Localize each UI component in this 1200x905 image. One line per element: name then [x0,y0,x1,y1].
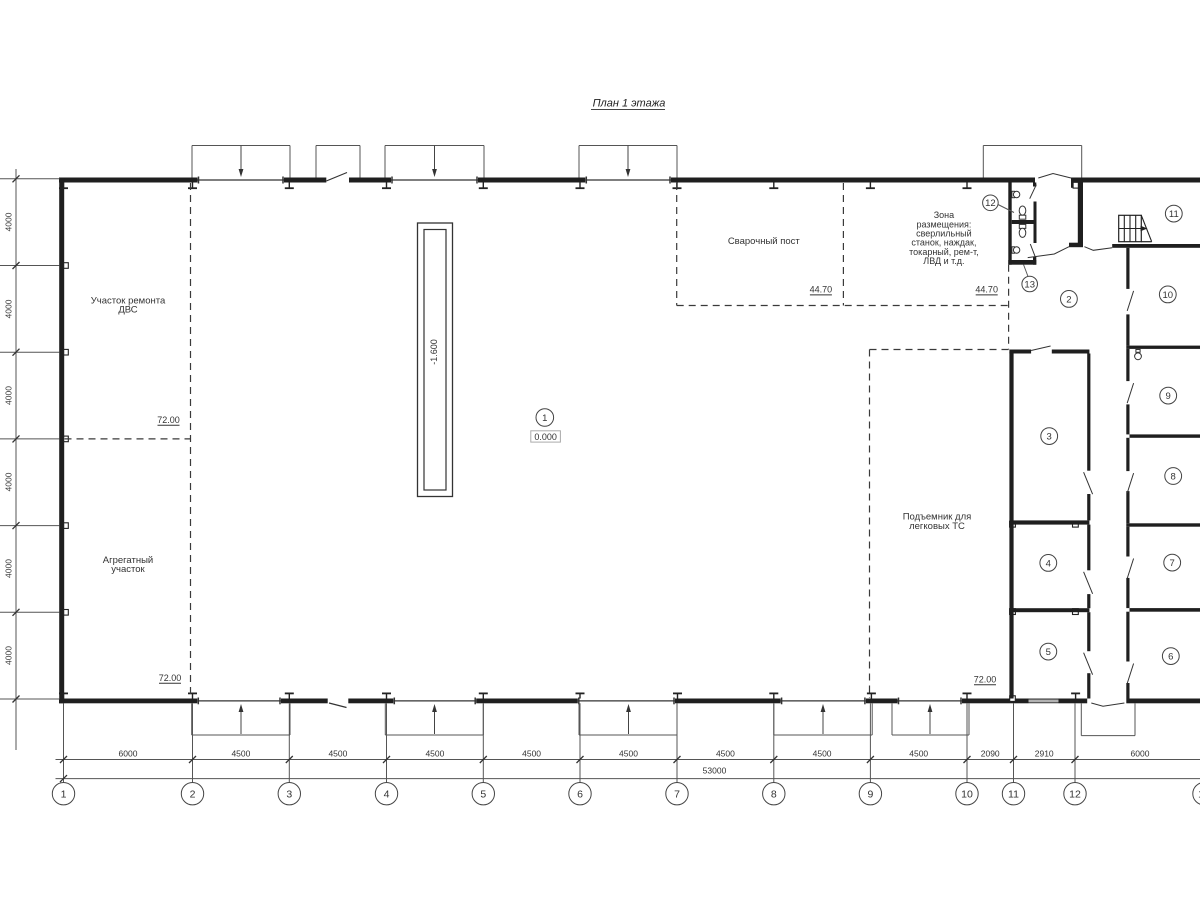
svg-text:4500: 4500 [328,749,347,759]
svg-text:4500: 4500 [909,749,928,759]
svg-text:2910: 2910 [1035,749,1054,759]
svg-text:4000: 4000 [4,646,14,665]
svg-text:5: 5 [480,789,486,801]
svg-text:ЛВД и т.д.: ЛВД и т.д. [923,256,964,266]
svg-text:72.00: 72.00 [157,415,180,425]
svg-text:4500: 4500 [231,749,250,759]
svg-text:Сварочный пост: Сварочный пост [728,236,801,247]
svg-text:участок: участок [111,564,145,575]
svg-text:2: 2 [1066,294,1071,305]
svg-text:3: 3 [286,789,292,801]
svg-text:легковых ТС: легковых ТС [909,521,965,532]
svg-text:12: 12 [1069,789,1081,801]
svg-text:53000: 53000 [703,766,727,776]
svg-text:2: 2 [190,789,196,801]
svg-text:9: 9 [1166,391,1171,402]
svg-text:7: 7 [1170,558,1175,569]
svg-text:6: 6 [1168,652,1173,663]
svg-text:4500: 4500 [619,749,638,759]
svg-text:4000: 4000 [4,386,14,405]
svg-text:8: 8 [771,789,777,801]
svg-text:4000: 4000 [4,559,14,578]
svg-text:44.70: 44.70 [975,285,998,295]
svg-text:8: 8 [1171,471,1176,482]
svg-text:6000: 6000 [119,749,138,759]
svg-text:12: 12 [985,198,996,209]
svg-text:1: 1 [61,789,67,801]
svg-text:4000: 4000 [4,299,14,318]
svg-text:3: 3 [1047,432,1052,443]
svg-text:7: 7 [674,789,680,801]
svg-text:4500: 4500 [813,749,832,759]
svg-text:4500: 4500 [716,749,735,759]
svg-text:4500: 4500 [425,749,444,759]
svg-text:2090: 2090 [981,749,1000,759]
svg-text:ДВС: ДВС [118,305,137,316]
svg-text:4: 4 [384,789,390,801]
svg-text:0.000: 0.000 [534,432,557,442]
svg-text:10: 10 [1163,290,1174,301]
svg-text:4500: 4500 [522,749,541,759]
svg-text:План 1 этажа: План 1 этажа [593,98,666,110]
svg-text:1: 1 [542,413,547,424]
svg-text:-1.600: -1.600 [429,339,439,365]
svg-text:72.00: 72.00 [159,673,182,683]
svg-text:9: 9 [867,789,873,801]
svg-text:44.70: 44.70 [810,285,833,295]
svg-text:10: 10 [961,789,973,801]
svg-text:72.00: 72.00 [974,675,997,685]
svg-text:4000: 4000 [4,472,14,491]
svg-text:6000: 6000 [1131,749,1150,759]
svg-text:13: 13 [1024,279,1035,290]
svg-text:11: 11 [1008,789,1019,801]
svg-text:11: 11 [1169,209,1179,220]
svg-text:6: 6 [577,789,583,801]
svg-text:4000: 4000 [4,212,14,231]
svg-text:4: 4 [1046,558,1051,569]
svg-text:5: 5 [1046,647,1051,658]
